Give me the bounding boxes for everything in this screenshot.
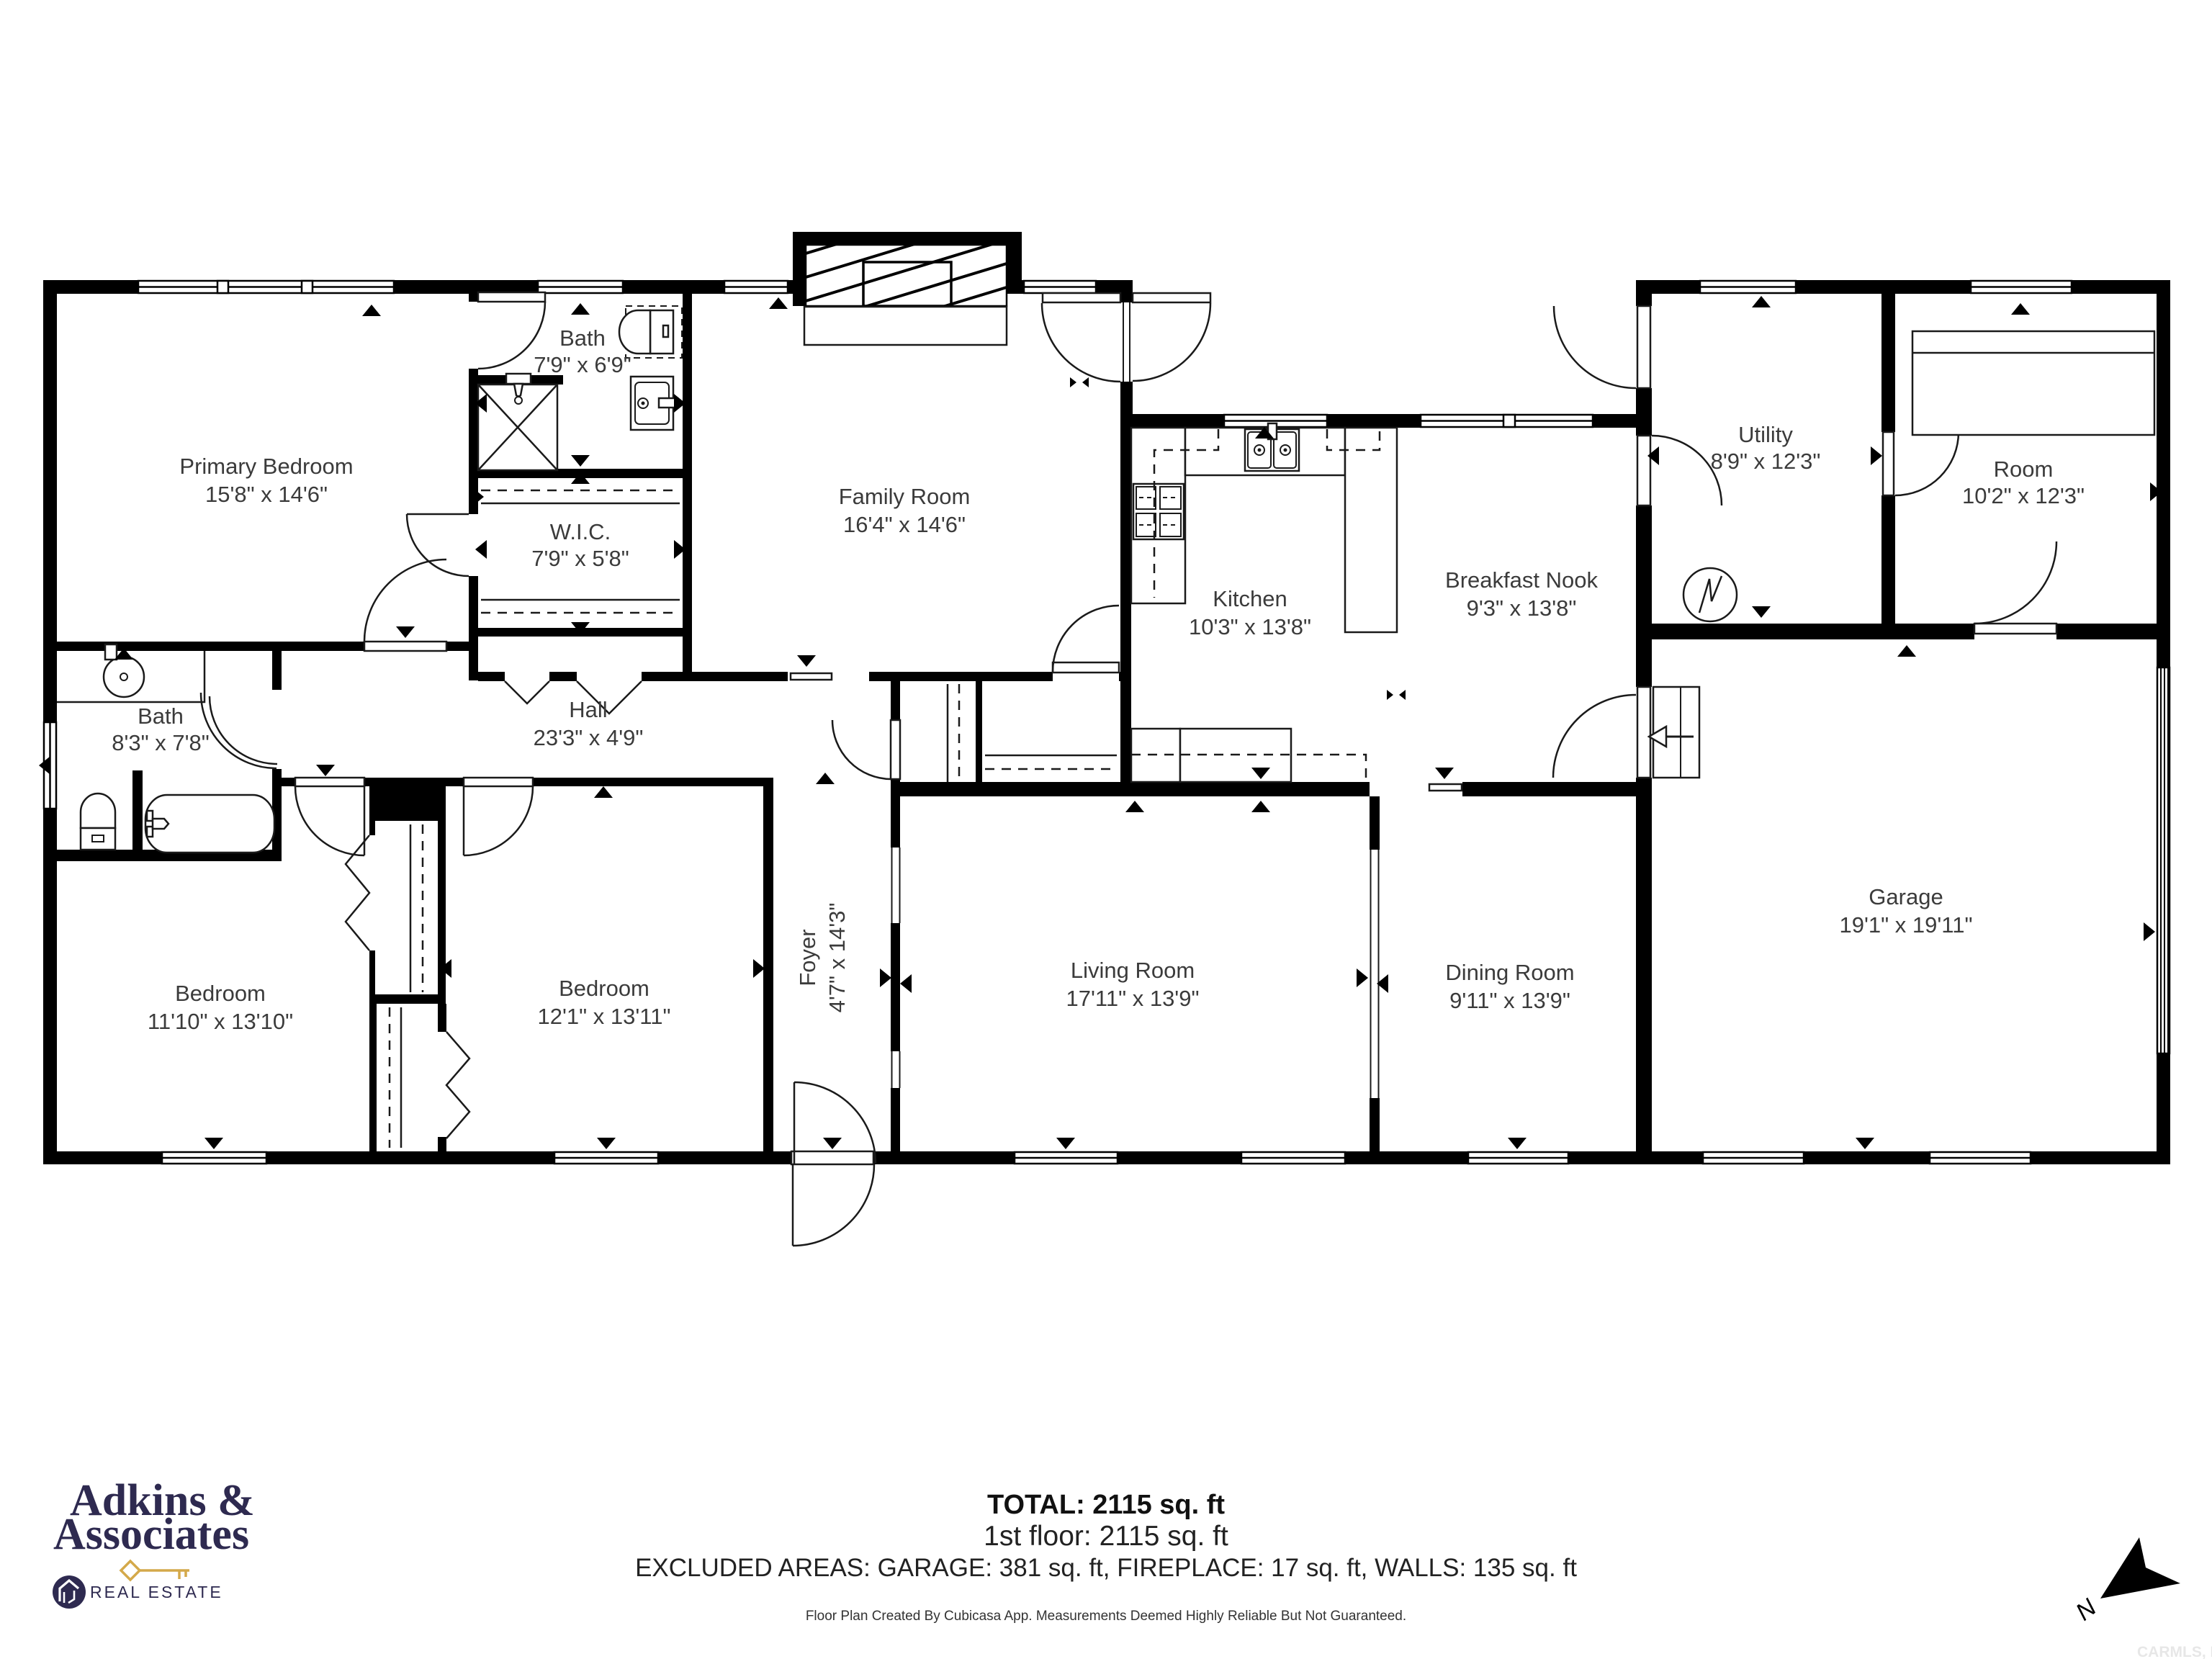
svg-text:Garage: Garage <box>1869 884 1943 909</box>
svg-text:EXCLUDED AREAS: GARAGE: 381 sq: EXCLUDED AREAS: GARAGE: 381 sq. ft, FIRE… <box>635 1554 1577 1582</box>
svg-text:Bath: Bath <box>138 703 184 729</box>
svg-text:Utility: Utility <box>1738 422 1793 447</box>
svg-text:CARMLS, IN: CARMLS, IN <box>2137 1644 2212 1659</box>
svg-text:Foyer: Foyer <box>795 929 820 986</box>
svg-text:7'9" x 6'9": 7'9" x 6'9" <box>534 352 631 377</box>
svg-text:16'4" x 14'6": 16'4" x 14'6" <box>843 512 966 537</box>
svg-text:W.I.C.: W.I.C. <box>550 519 611 544</box>
svg-text:12'1" x 13'11": 12'1" x 13'11" <box>538 1004 671 1029</box>
svg-text:Breakfast Nook: Breakfast Nook <box>1445 567 1598 593</box>
svg-text:Primary Bedroom: Primary Bedroom <box>179 454 353 479</box>
svg-text:Bedroom: Bedroom <box>559 976 649 1001</box>
svg-text:23'3" x 4'9": 23'3" x 4'9" <box>534 725 644 750</box>
svg-text:Dining Room: Dining Room <box>1445 960 1574 985</box>
svg-text:7'9" x 5'8": 7'9" x 5'8" <box>531 546 629 571</box>
svg-text:Associates: Associates <box>53 1510 249 1559</box>
svg-text:10'2" x 12'3": 10'2" x 12'3" <box>1962 483 2085 508</box>
svg-text:9'3" x 13'8": 9'3" x 13'8" <box>1467 595 1577 621</box>
svg-text:Kitchen: Kitchen <box>1213 586 1287 611</box>
svg-text:Living Room: Living Room <box>1071 958 1195 983</box>
svg-text:19'1" x 19'11": 19'1" x 19'11" <box>1840 912 1973 938</box>
svg-text:8'9" x 12'3": 8'9" x 12'3" <box>1711 449 1821 474</box>
svg-text:4'7" x 14'3": 4'7" x 14'3" <box>824 903 850 1013</box>
svg-text:Hall: Hall <box>569 697 607 722</box>
svg-text:Family Room: Family Room <box>839 484 971 509</box>
svg-text:10'3" x 13'8": 10'3" x 13'8" <box>1189 614 1311 639</box>
svg-text:8'3" x 7'8": 8'3" x 7'8" <box>112 730 210 755</box>
svg-text:15'8" x 14'6": 15'8" x 14'6" <box>205 482 328 507</box>
svg-text:17'11" x 13'9": 17'11" x 13'9" <box>1066 986 1200 1011</box>
svg-text:Bedroom: Bedroom <box>175 981 266 1006</box>
svg-text:REAL ESTATE: REAL ESTATE <box>90 1583 223 1601</box>
svg-text:Bath: Bath <box>559 325 606 351</box>
svg-text:TOTAL: 2115 sq. ft: TOTAL: 2115 sq. ft <box>987 1490 1225 1520</box>
svg-text:Room: Room <box>1994 457 2054 482</box>
svg-text:Floor Plan Created By Cubicasa: Floor Plan Created By Cubicasa App. Meas… <box>806 1609 1406 1624</box>
svg-text:9'11" x 13'9": 9'11" x 13'9" <box>1449 988 1570 1013</box>
svg-text:11'10" x 13'10": 11'10" x 13'10" <box>148 1009 293 1034</box>
svg-text:1st floor: 2115 sq. ft: 1st floor: 2115 sq. ft <box>984 1521 1228 1552</box>
